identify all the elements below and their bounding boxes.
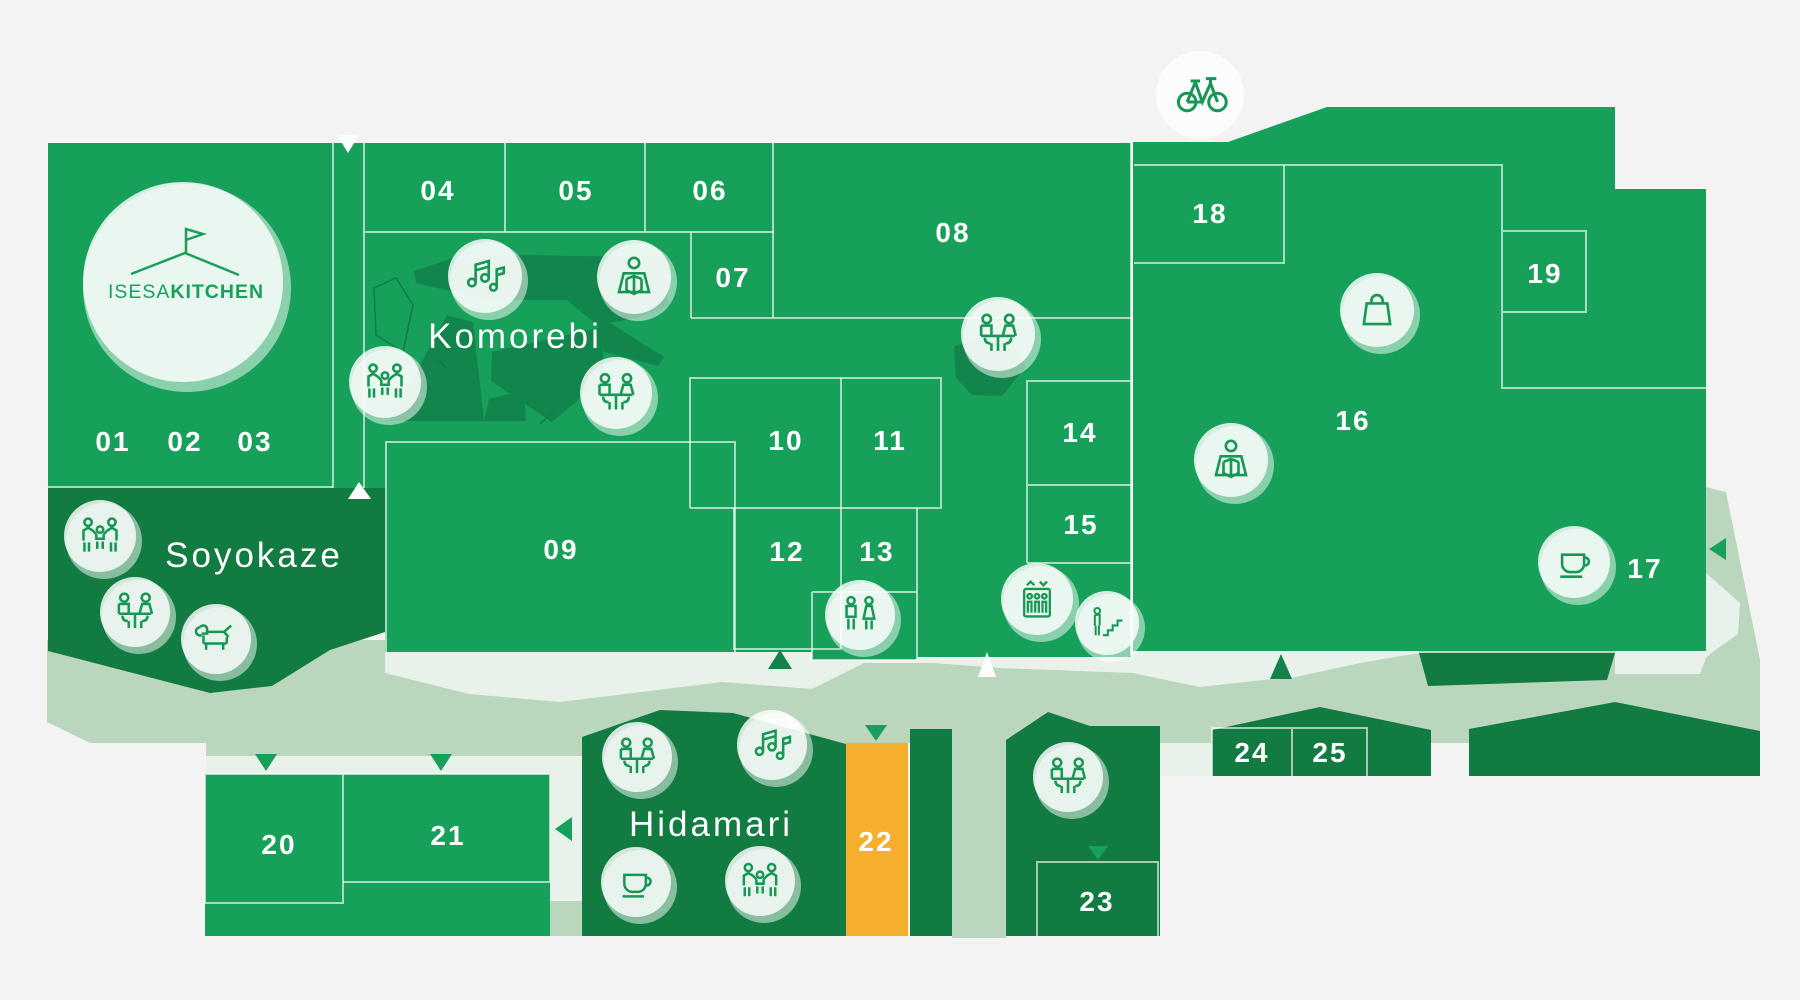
svg-text:22: 22	[858, 826, 893, 857]
svg-text:05: 05	[558, 175, 593, 206]
svg-text:17: 17	[1627, 553, 1662, 584]
svg-text:Komorebi: Komorebi	[428, 317, 602, 356]
svg-text:Soyokaze: Soyokaze	[165, 536, 343, 575]
svg-text:06: 06	[692, 175, 727, 206]
svg-text:24: 24	[1234, 737, 1269, 768]
svg-text:04: 04	[420, 175, 455, 206]
svg-text:18: 18	[1192, 198, 1227, 229]
svg-text:11: 11	[873, 425, 907, 456]
svg-text:08: 08	[935, 217, 970, 248]
svg-text:03: 03	[237, 426, 272, 457]
svg-text:19: 19	[1527, 258, 1562, 289]
svg-text:ISESAKITCHEN: ISESAKITCHEN	[108, 281, 264, 303]
svg-text:01: 01	[95, 426, 130, 457]
svg-text:02: 02	[167, 426, 202, 457]
svg-text:12: 12	[769, 536, 804, 567]
svg-text:14: 14	[1062, 417, 1097, 448]
svg-text:21: 21	[430, 820, 465, 851]
svg-text:23: 23	[1079, 886, 1114, 917]
svg-text:25: 25	[1312, 737, 1347, 768]
svg-text:20: 20	[261, 829, 296, 860]
svg-text:15: 15	[1063, 509, 1098, 540]
svg-text:09: 09	[543, 534, 578, 565]
svg-text:13: 13	[859, 536, 894, 567]
svg-text:Hidamari: Hidamari	[629, 805, 793, 844]
svg-text:07: 07	[715, 262, 750, 293]
svg-text:16: 16	[1335, 405, 1370, 436]
svg-text:10: 10	[768, 425, 803, 456]
